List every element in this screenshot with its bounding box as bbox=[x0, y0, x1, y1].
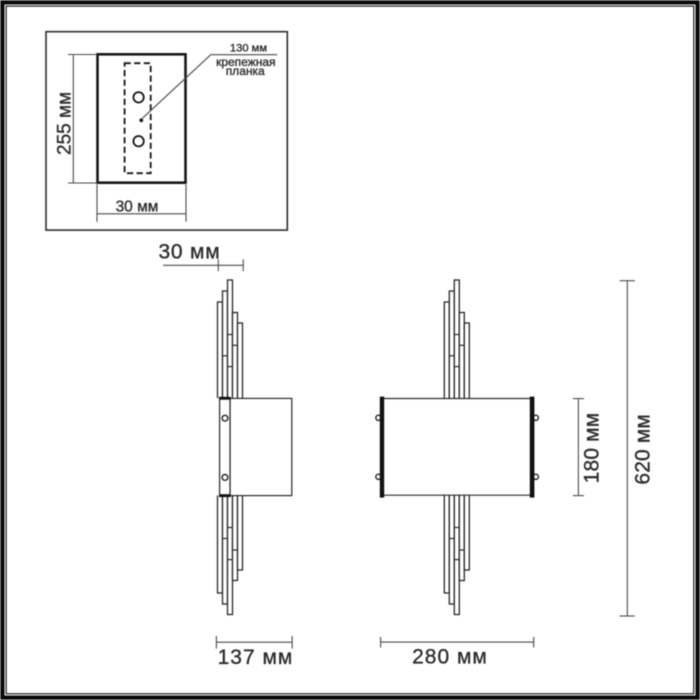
svg-text:180 мм: 180 мм bbox=[581, 413, 604, 484]
svg-text:280 мм: 280 мм bbox=[412, 646, 488, 669]
svg-text:30 мм: 30 мм bbox=[116, 198, 159, 215]
svg-text:255 мм: 255 мм bbox=[55, 92, 76, 155]
svg-text:137 мм: 137 мм bbox=[218, 646, 294, 669]
svg-text:30 мм: 30 мм bbox=[158, 240, 220, 263]
svg-text:планка: планка bbox=[226, 64, 265, 78]
svg-text:130 мм: 130 мм bbox=[230, 43, 267, 55]
svg-text:620 мм: 620 мм bbox=[632, 414, 655, 485]
